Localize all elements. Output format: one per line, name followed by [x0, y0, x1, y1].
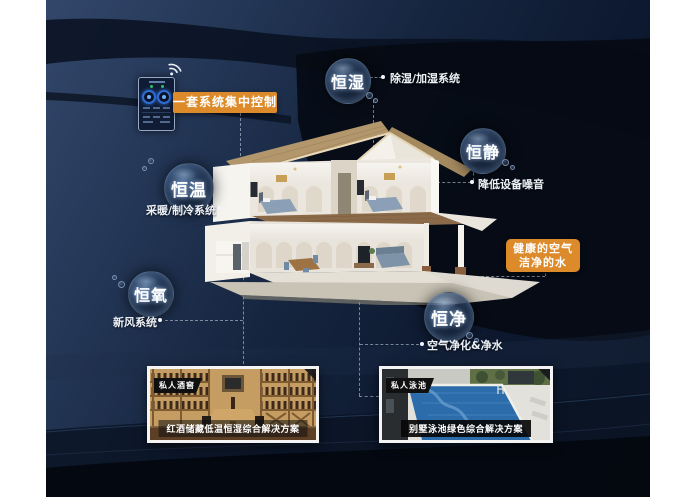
control-panel-phone	[138, 77, 175, 131]
label-dehumidify-system: 除湿/加湿系统	[390, 70, 460, 86]
mini-bubble	[112, 275, 117, 280]
bubble-constant-quiet: 恒静	[460, 128, 506, 174]
phone-dial-icon	[157, 90, 171, 104]
mini-bubble	[510, 165, 515, 170]
pool-tag: 私人泳池	[386, 378, 434, 393]
bubble-constant-humidity: 恒湿	[325, 58, 371, 104]
mini-bubble	[142, 166, 147, 171]
healthy-air-line: 健康的空气	[506, 242, 580, 256]
wine-cellar-caption: 红酒储藏低温恒湿综合解决方案	[158, 420, 307, 437]
card-swimming-pool: 私人泳池 别墅泳池绿色综合解决方案	[379, 366, 553, 443]
mini-bubble	[148, 158, 154, 164]
phone-dial-icon	[142, 90, 156, 104]
mini-bubble	[502, 159, 509, 166]
bullet-dot	[217, 206, 221, 210]
card-wine-cellar: 私人酒窖 红酒储藏低温恒湿综合解决方案	[147, 366, 319, 443]
connector-line	[165, 320, 243, 321]
infographic-canvas: 一套系统集中控制 恒湿 恒静 恒温 恒氧 恒净 除湿/加湿系统 降低设备噪音 采…	[46, 0, 650, 497]
phone-header-bar	[149, 81, 165, 83]
bullet-dot	[420, 342, 424, 346]
label-fresh-air: 新风系统	[113, 314, 157, 330]
clean-water-line: 洁净的水	[506, 256, 580, 270]
bubble-constant-oxygen: 恒氧	[128, 271, 174, 317]
connector-line	[359, 396, 379, 397]
bullet-dot	[470, 180, 474, 184]
pool-caption: 别墅泳池绿色综合解决方案	[401, 420, 531, 437]
connector-line	[360, 344, 419, 345]
label-purification: 空气净化&净水	[427, 337, 503, 353]
bullet-dot	[158, 318, 162, 322]
healthy-air-water-callout: 健康的空气 洁净的水	[506, 239, 580, 272]
wine-cellar-tag: 私人酒窖	[154, 378, 202, 393]
label-heating-cooling: 采暖/制冷系统	[146, 202, 216, 218]
mini-bubble	[373, 98, 378, 103]
label-noise-reduction: 降低设备噪音	[478, 176, 544, 192]
mini-bubble	[118, 281, 125, 288]
infographic-page: 一套系统集中控制 恒湿 恒静 恒温 恒氧 恒净 除湿/加湿系统 降低设备噪音 采…	[0, 0, 700, 497]
mini-bubble	[366, 92, 373, 99]
bullet-dot	[381, 75, 385, 79]
phone-control-buttons	[139, 90, 174, 104]
central-control-callout: 一套系统集中控制	[173, 92, 277, 113]
phone-status-dots	[139, 85, 174, 88]
